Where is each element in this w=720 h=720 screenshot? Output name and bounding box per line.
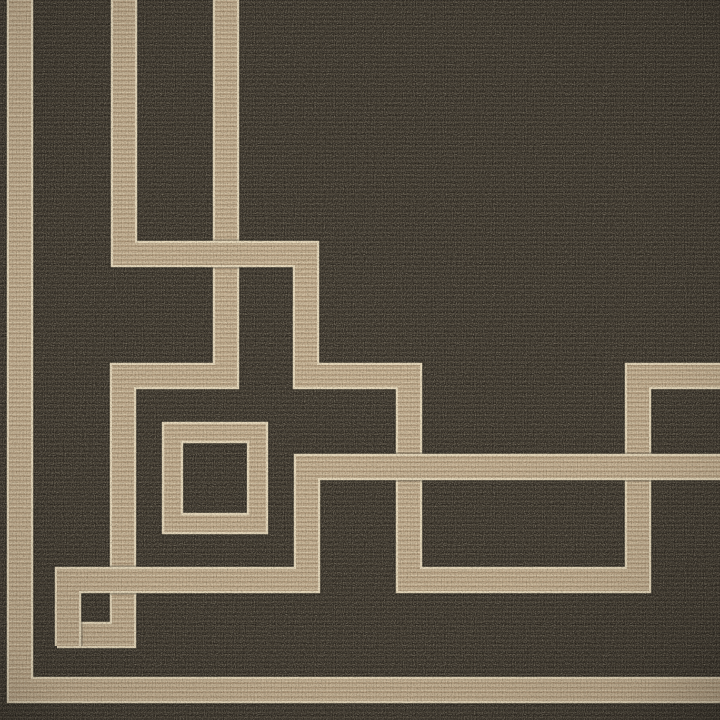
rug-svg (0, 0, 720, 720)
rug-photo (0, 0, 720, 720)
photo-vignette (0, 0, 720, 720)
